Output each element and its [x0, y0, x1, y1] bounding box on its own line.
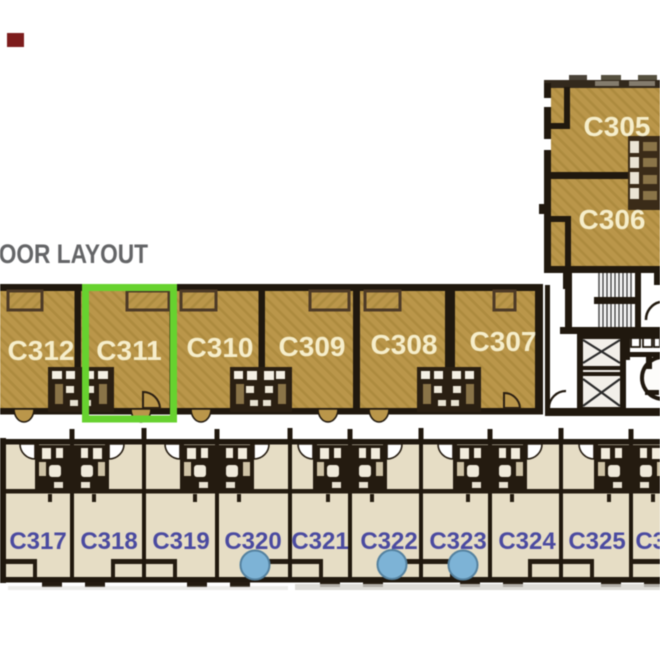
svg-text:C326: C326 — [635, 528, 660, 555]
svg-text:C324: C324 — [498, 528, 556, 555]
svg-text:C311: C311 — [96, 335, 161, 366]
svg-text:C325: C325 — [568, 528, 625, 555]
svg-text:C309: C309 — [279, 331, 346, 362]
svg-text:C312: C312 — [8, 335, 75, 366]
svg-text:C321: C321 — [291, 528, 348, 555]
svg-text:C319: C319 — [152, 528, 209, 555]
svg-text:C318: C318 — [80, 528, 137, 555]
svg-text:C310: C310 — [187, 332, 254, 363]
svg-text:C307: C307 — [470, 326, 537, 357]
svg-text:C305: C305 — [584, 111, 651, 142]
svg-text:C308: C308 — [371, 329, 438, 360]
svg-text:C317: C317 — [9, 528, 66, 555]
svg-text:FLOOR LAYOUT: FLOOR LAYOUT — [0, 239, 148, 269]
svg-text:C306: C306 — [579, 204, 646, 235]
